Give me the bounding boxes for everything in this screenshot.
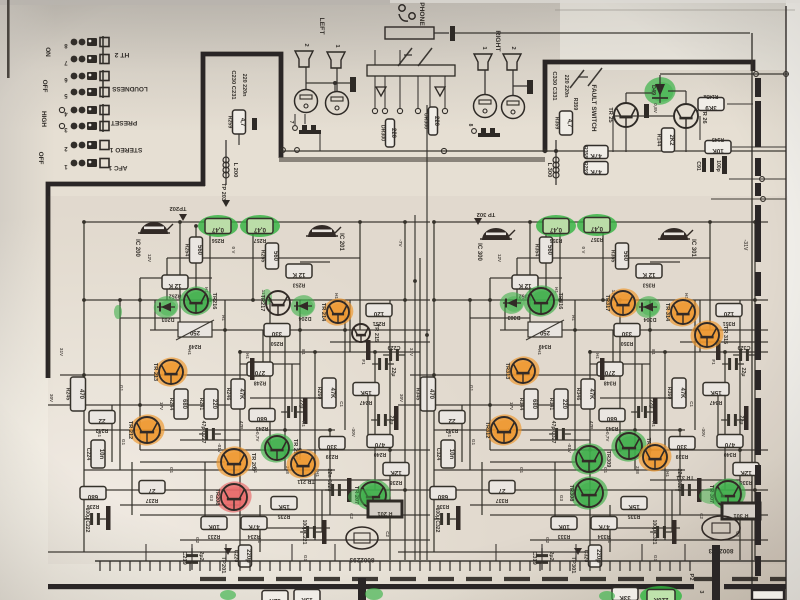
svg-text:C330 C331: C330 C331 — [551, 71, 557, 101]
svg-text:100p: 100p — [715, 160, 721, 171]
svg-text:OFF: OFF — [37, 152, 44, 165]
svg-text:C230 C231: C230 C231 — [230, 70, 236, 100]
svg-text:LEFT: LEFT — [318, 18, 325, 36]
svg-text:220 220n: 220 220n — [241, 74, 247, 97]
svg-text:HIGH: HIGH — [40, 111, 47, 127]
svg-text:R144: R144 — [656, 134, 662, 147]
svg-text:R358: R358 — [582, 146, 588, 158]
svg-text:R259: R259 — [582, 162, 588, 174]
svg-text:47K: 47K — [590, 168, 602, 175]
svg-text:7: 7 — [288, 121, 294, 124]
svg-text:PHONE: PHONE — [418, 2, 425, 26]
svg-text:L 300: L 300 — [546, 163, 552, 178]
svg-text:TR 25: TR 25 — [607, 107, 613, 122]
svg-text:2K2: 2K2 — [668, 134, 674, 146]
svg-text:C91: C91 — [695, 161, 701, 171]
svg-text:3: 3 — [698, 591, 704, 594]
svg-text:220K: 220K — [653, 596, 668, 600]
svg-text:1: 1 — [481, 46, 487, 49]
svg-text:L 200: L 200 — [232, 163, 238, 178]
svg-text:HT 2: HT 2 — [114, 51, 129, 58]
svg-text:4,7: 4,7 — [566, 119, 572, 128]
svg-text:47K: 47K — [590, 152, 602, 159]
svg-text:220: 220 — [433, 116, 439, 127]
svg-text:AFC 1: AFC 1 — [108, 164, 127, 171]
svg-text:10K: 10K — [712, 147, 724, 154]
svg-text:ON: ON — [44, 47, 51, 57]
svg-text:STEREO 1: STEREO 1 — [109, 146, 142, 153]
svg-text:R145a: R145a — [703, 93, 718, 99]
svg-text:PRESET: PRESET — [111, 119, 137, 126]
svg-text:RIGHT: RIGHT — [494, 30, 501, 52]
svg-text:15K: 15K — [301, 596, 313, 600]
svg-text:R359: R359 — [572, 98, 578, 111]
svg-text:0,8V: 0,8V — [652, 103, 658, 114]
svg-text:DR300: DR300 — [380, 125, 386, 141]
svg-text:R259: R259 — [227, 116, 233, 129]
svg-text:OFF: OFF — [41, 80, 48, 93]
svg-text:8: 8 — [467, 124, 473, 127]
svg-text:1: 1 — [334, 44, 340, 47]
svg-text:R145: R145 — [712, 136, 724, 142]
svg-text:4,7: 4,7 — [239, 118, 245, 127]
svg-text:R359: R359 — [554, 117, 560, 130]
svg-text:TP 203: TP 203 — [220, 183, 226, 201]
svg-text:2: 2 — [510, 46, 516, 49]
svg-text:P2: P2 — [688, 573, 694, 580]
svg-text:3K9: 3K9 — [705, 104, 717, 111]
svg-text:FAULT SWITCH: FAULT SWITCH — [590, 84, 597, 131]
svg-text:2: 2 — [303, 43, 309, 46]
svg-text:LOUDNESS: LOUDNESS — [112, 85, 148, 92]
svg-text:33K: 33K — [619, 594, 631, 600]
svg-text:220 220n: 220 220n — [563, 75, 569, 98]
svg-text:220: 220 — [390, 128, 396, 139]
